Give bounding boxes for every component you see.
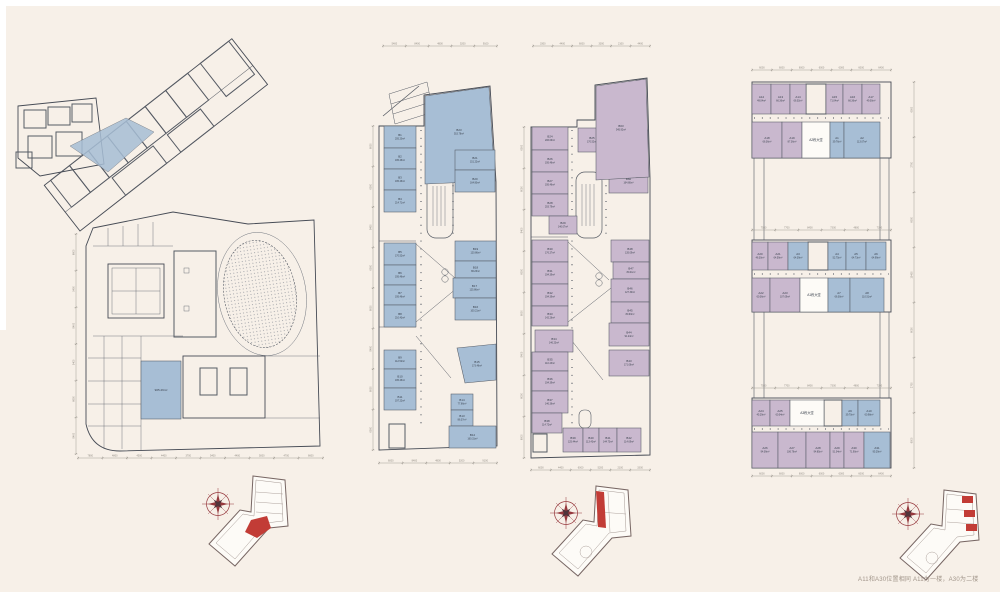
- svg-text:5200: 5200: [459, 460, 465, 463]
- floor-plan-b-second: B24206.09m²B26195.46m²B27195.46m²B28203.…: [519, 30, 655, 478]
- svg-text:164.80m²: 164.80m²: [470, 181, 480, 184]
- svg-text:164.80m²: 164.80m²: [623, 181, 633, 184]
- svg-text:6600: 6600: [308, 455, 314, 458]
- highlight-area: [966, 524, 977, 531]
- svg-text:6400: 6400: [878, 67, 884, 70]
- svg-text:60.04m²: 60.04m²: [776, 413, 785, 416]
- svg-text:5400: 5400: [72, 359, 75, 365]
- svg-text:8400: 8400: [412, 460, 418, 463]
- svg-text:210.43m²: 210.43m²: [395, 316, 405, 319]
- svg-text:87.36m²: 87.36m²: [788, 140, 797, 143]
- svg-text:2700: 2700: [910, 161, 913, 167]
- svg-text:6000: 6000: [839, 67, 845, 70]
- svg-text:77.66m²: 77.66m²: [458, 402, 467, 405]
- svg-text:5400: 5400: [210, 455, 216, 458]
- svg-text:6600: 6600: [72, 249, 75, 255]
- svg-text:195.46m²: 195.46m²: [395, 159, 405, 162]
- svg-text:A2栋大堂: A2栋大堂: [809, 137, 822, 142]
- svg-text:49.04m²: 49.04m²: [757, 99, 766, 102]
- svg-text:110.51m²: 110.51m²: [862, 295, 872, 298]
- svg-text:66.36m²: 66.36m²: [848, 99, 857, 102]
- svg-text:39.76m²: 39.76m²: [833, 140, 842, 143]
- svg-text:94.09m²: 94.09m²: [761, 450, 770, 453]
- svg-text:214.71m²: 214.71m²: [395, 201, 405, 204]
- sheet-margin-left: [0, 0, 6, 330]
- svg-text:60.36m²: 60.36m²: [757, 295, 766, 298]
- svg-text:6000: 6000: [520, 393, 523, 399]
- angled-wing: [44, 39, 267, 231]
- svg-text:6600: 6600: [72, 396, 75, 402]
- svg-text:64.59m²: 64.59m²: [774, 256, 783, 259]
- svg-text:6000: 6000: [779, 473, 785, 476]
- key-outline: [552, 486, 631, 576]
- svg-text:113.43m²: 113.43m²: [586, 440, 596, 443]
- svg-text:6000: 6000: [910, 216, 913, 222]
- svg-text:6000: 6000: [520, 144, 523, 150]
- svg-text:45.29m²: 45.29m²: [757, 413, 766, 416]
- svg-text:6000: 6000: [369, 183, 372, 189]
- svg-text:7500: 7500: [761, 385, 767, 388]
- rooms-layer-site: 905.29m²: [141, 361, 181, 419]
- svg-text:6000: 6000: [369, 264, 372, 270]
- svg-text:80.93m²: 80.93m²: [626, 313, 635, 316]
- svg-text:6000: 6000: [799, 473, 805, 476]
- svg-text:6000: 6000: [839, 473, 845, 476]
- svg-text:94.85m²: 94.85m²: [814, 450, 823, 453]
- svg-text:8400: 8400: [520, 227, 523, 233]
- svg-text:5200: 5200: [460, 43, 466, 46]
- svg-text:5000: 5000: [259, 455, 265, 458]
- svg-text:6000: 6000: [520, 310, 523, 316]
- highlight-area: [962, 496, 973, 503]
- svg-text:4800: 4800: [853, 385, 859, 388]
- svg-text:A3栋大堂: A3栋大堂: [800, 410, 813, 415]
- svg-text:9100: 9100: [483, 43, 489, 46]
- svg-text:7300: 7300: [830, 227, 836, 230]
- svg-text:144.73m²: 144.73m²: [603, 440, 613, 443]
- svg-text:107.09m²: 107.09m²: [780, 295, 790, 298]
- svg-text:7300: 7300: [877, 227, 883, 230]
- svg-text:4700: 4700: [283, 455, 289, 458]
- svg-text:71.04m²: 71.04m²: [830, 99, 839, 102]
- svg-text:7300: 7300: [830, 385, 836, 388]
- svg-text:142.26m²: 142.26m²: [545, 316, 555, 319]
- svg-text:905.29m²: 905.29m²: [155, 388, 168, 392]
- svg-text:64.73m²: 64.73m²: [852, 256, 861, 259]
- svg-text:6000: 6000: [369, 143, 372, 149]
- svg-text:146.23m²: 146.23m²: [549, 341, 559, 344]
- rooms-layer-b-second: B24206.09m²B26195.46m²B27195.46m²B28203.…: [532, 79, 649, 452]
- svg-text:6000: 6000: [910, 106, 913, 112]
- svg-text:64.99m²: 64.99m²: [872, 256, 881, 259]
- svg-text:7300: 7300: [877, 385, 883, 388]
- svg-text:195.46m²: 195.46m²: [545, 161, 555, 164]
- svg-text:4800: 4800: [435, 460, 441, 463]
- svg-text:195.46m²: 195.46m²: [395, 180, 405, 183]
- svg-text:6000: 6000: [910, 327, 913, 333]
- svg-text:60.98m²: 60.98m²: [865, 413, 874, 416]
- compass-icon: [892, 498, 924, 530]
- svg-text:71.90m²: 71.90m²: [850, 450, 859, 453]
- svg-text:170.52m²: 170.52m²: [587, 140, 597, 143]
- drawing-sheet: 905.29m² 7800480045004400370054004400500…: [0, 0, 1000, 592]
- svg-text:6000: 6000: [388, 460, 394, 463]
- svg-text:8400: 8400: [369, 345, 372, 351]
- svg-text:112.52m²: 112.52m²: [395, 360, 405, 363]
- svg-text:6000: 6000: [520, 434, 523, 440]
- svg-text:4400: 4400: [161, 455, 167, 458]
- svg-text:125.44m²: 125.44m²: [568, 440, 578, 443]
- svg-text:125.86m²: 125.86m²: [469, 288, 479, 291]
- svg-text:106.76m²: 106.76m²: [787, 450, 797, 453]
- sheet-caption: A11和A30位置相同 A11为一楼，A30为二楼: [858, 574, 1000, 583]
- svg-text:113.07m²: 113.07m²: [857, 140, 867, 143]
- svg-text:7700: 7700: [784, 227, 790, 230]
- svg-text:8400: 8400: [72, 322, 75, 328]
- svg-text:49.00m²: 49.00m²: [867, 99, 876, 102]
- svg-text:64.39m²: 64.39m²: [794, 256, 803, 259]
- svg-text:110.43m²: 110.43m²: [545, 362, 555, 365]
- svg-text:135.09m²: 135.09m²: [625, 251, 635, 254]
- svg-text:114.69m²: 114.69m²: [624, 440, 634, 443]
- svg-text:7800: 7800: [87, 455, 93, 458]
- compass-icon: [550, 497, 582, 529]
- svg-text:176.27m²: 176.27m²: [545, 251, 555, 254]
- svg-text:6000: 6000: [819, 473, 825, 476]
- svg-text:86.26m²: 86.26m²: [471, 270, 480, 273]
- svg-text:140.07m²: 140.07m²: [558, 225, 568, 228]
- svg-text:8400: 8400: [520, 351, 523, 357]
- svg-text:173.46m²: 173.46m²: [472, 364, 482, 367]
- main-body: [86, 212, 320, 451]
- svg-text:39.70m²: 39.70m²: [846, 413, 855, 416]
- svg-text:6000: 6000: [910, 437, 913, 443]
- svg-text:4400: 4400: [559, 43, 565, 46]
- svg-text:A1栋大堂: A1栋大堂: [807, 292, 820, 297]
- svg-text:195.46m²: 195.46m²: [395, 379, 405, 382]
- svg-text:66.36m²: 66.36m²: [776, 99, 785, 102]
- svg-text:51.04m²: 51.04m²: [833, 450, 842, 453]
- svg-text:80.41m²: 80.41m²: [627, 271, 636, 274]
- svg-text:114.72m²: 114.72m²: [542, 423, 552, 426]
- svg-text:160.31m²: 160.31m²: [467, 437, 477, 440]
- svg-text:4800: 4800: [112, 455, 118, 458]
- floor-plan-b-first: B1205.20m²B2195.46m²B3195.46m²B4214.71m²…: [369, 26, 503, 470]
- svg-text:95.29m²: 95.29m²: [873, 450, 882, 453]
- svg-text:120.86m²: 120.86m²: [470, 251, 480, 254]
- svg-text:4500: 4500: [136, 455, 142, 458]
- floor-plan-site: 905.29m² 7800480045004400370054004400500…: [8, 6, 360, 476]
- svg-text:195.46m²: 195.46m²: [395, 295, 405, 298]
- svg-text:6000: 6000: [799, 67, 805, 70]
- svg-text:2700: 2700: [910, 382, 913, 388]
- svg-text:91.24m²: 91.24m²: [625, 335, 634, 338]
- svg-text:195.46m²: 195.46m²: [545, 183, 555, 186]
- svg-text:6000: 6000: [369, 386, 372, 392]
- west-cluster: [16, 98, 154, 176]
- svg-text:6000: 6000: [369, 305, 372, 311]
- svg-text:6400: 6400: [878, 473, 884, 476]
- svg-text:8400: 8400: [807, 227, 813, 230]
- svg-text:6000: 6000: [578, 467, 584, 470]
- svg-text:4400: 4400: [234, 455, 240, 458]
- svg-text:195.46m²: 195.46m²: [395, 275, 405, 278]
- svg-text:3300: 3300: [540, 43, 546, 46]
- svg-text:100.21m²: 100.21m²: [470, 309, 480, 312]
- svg-text:545.92m²: 545.92m²: [616, 128, 626, 131]
- svg-text:3300: 3300: [598, 43, 604, 46]
- svg-text:127.30m²: 127.30m²: [625, 291, 635, 294]
- svg-text:7500: 7500: [761, 227, 767, 230]
- svg-text:146.36m²: 146.36m²: [545, 402, 555, 405]
- svg-text:8400: 8400: [369, 224, 372, 230]
- svg-text:66.00m²: 66.00m²: [835, 295, 844, 298]
- svg-text:170.52m²: 170.52m²: [395, 254, 405, 257]
- svg-text:3700: 3700: [185, 455, 191, 458]
- svg-text:194.39m²: 194.39m²: [545, 295, 555, 298]
- svg-text:6000: 6000: [759, 473, 765, 476]
- key-outline: [209, 476, 288, 566]
- compass-icon: [202, 488, 234, 520]
- svg-text:6000: 6000: [520, 268, 523, 274]
- svg-text:6000: 6000: [858, 473, 864, 476]
- svg-text:8400: 8400: [807, 385, 813, 388]
- svg-text:205.20m²: 205.20m²: [395, 137, 405, 140]
- svg-text:515.78m²: 515.78m²: [454, 132, 464, 135]
- svg-text:4800: 4800: [437, 43, 443, 46]
- locator-key-2: [538, 480, 658, 590]
- svg-text:171.06m²: 171.06m²: [624, 363, 634, 366]
- svg-text:203.79m²: 203.79m²: [545, 205, 555, 208]
- svg-text:86.37m²: 86.37m²: [458, 418, 467, 421]
- svg-text:4400: 4400: [558, 467, 564, 470]
- svg-text:2100: 2100: [618, 43, 624, 46]
- svg-text:8400: 8400: [414, 43, 420, 46]
- svg-text:4400: 4400: [637, 43, 643, 46]
- svg-text:3300: 3300: [637, 467, 643, 470]
- svg-text:151.22m²: 151.22m²: [470, 160, 480, 163]
- svg-text:6000: 6000: [369, 426, 372, 432]
- svg-text:6000: 6000: [858, 67, 864, 70]
- svg-text:197.22m²: 197.22m²: [395, 399, 405, 402]
- svg-text:6000: 6000: [759, 67, 765, 70]
- svg-text:66.02m²: 66.02m²: [794, 99, 803, 102]
- svg-text:46.30m²: 46.30m²: [756, 256, 765, 259]
- svg-text:5400: 5400: [72, 286, 75, 292]
- svg-text:66.36m²: 66.36m²: [763, 140, 772, 143]
- floor-plan-a-blocks: A1249.04m²A1366.36m²A1466.02m²A1571.04m²…: [742, 58, 938, 486]
- svg-text:5400: 5400: [392, 43, 398, 46]
- svg-text:6000: 6000: [819, 67, 825, 70]
- svg-text:6000: 6000: [538, 467, 544, 470]
- svg-text:206.09m²: 206.09m²: [545, 139, 555, 142]
- highlight-area: [964, 510, 975, 517]
- svg-text:4800: 4800: [853, 227, 859, 230]
- svg-text:194.39m²: 194.39m²: [545, 273, 555, 276]
- svg-text:194.39m²: 194.39m²: [545, 381, 555, 384]
- svg-text:9100: 9100: [482, 460, 488, 463]
- svg-text:2100: 2100: [617, 467, 623, 470]
- svg-text:8400: 8400: [72, 432, 75, 438]
- svg-text:6000: 6000: [779, 67, 785, 70]
- svg-text:15400: 15400: [910, 271, 913, 279]
- rooms-layer-a: A1249.04m²A1366.36m²A1466.02m²A1571.04m²…: [752, 84, 890, 468]
- svg-text:6000: 6000: [579, 43, 585, 46]
- locator-key-1: [193, 468, 318, 583]
- svg-text:7700: 7700: [784, 385, 790, 388]
- svg-text:5200: 5200: [598, 467, 604, 470]
- rooms-layer-b-first: B1205.20m²B2195.46m²B3195.46m²B4214.71m²…: [384, 87, 496, 448]
- svg-text:52.75m²: 52.75m²: [833, 256, 842, 259]
- svg-text:6000: 6000: [520, 186, 523, 192]
- locator-key-3: [868, 488, 993, 588]
